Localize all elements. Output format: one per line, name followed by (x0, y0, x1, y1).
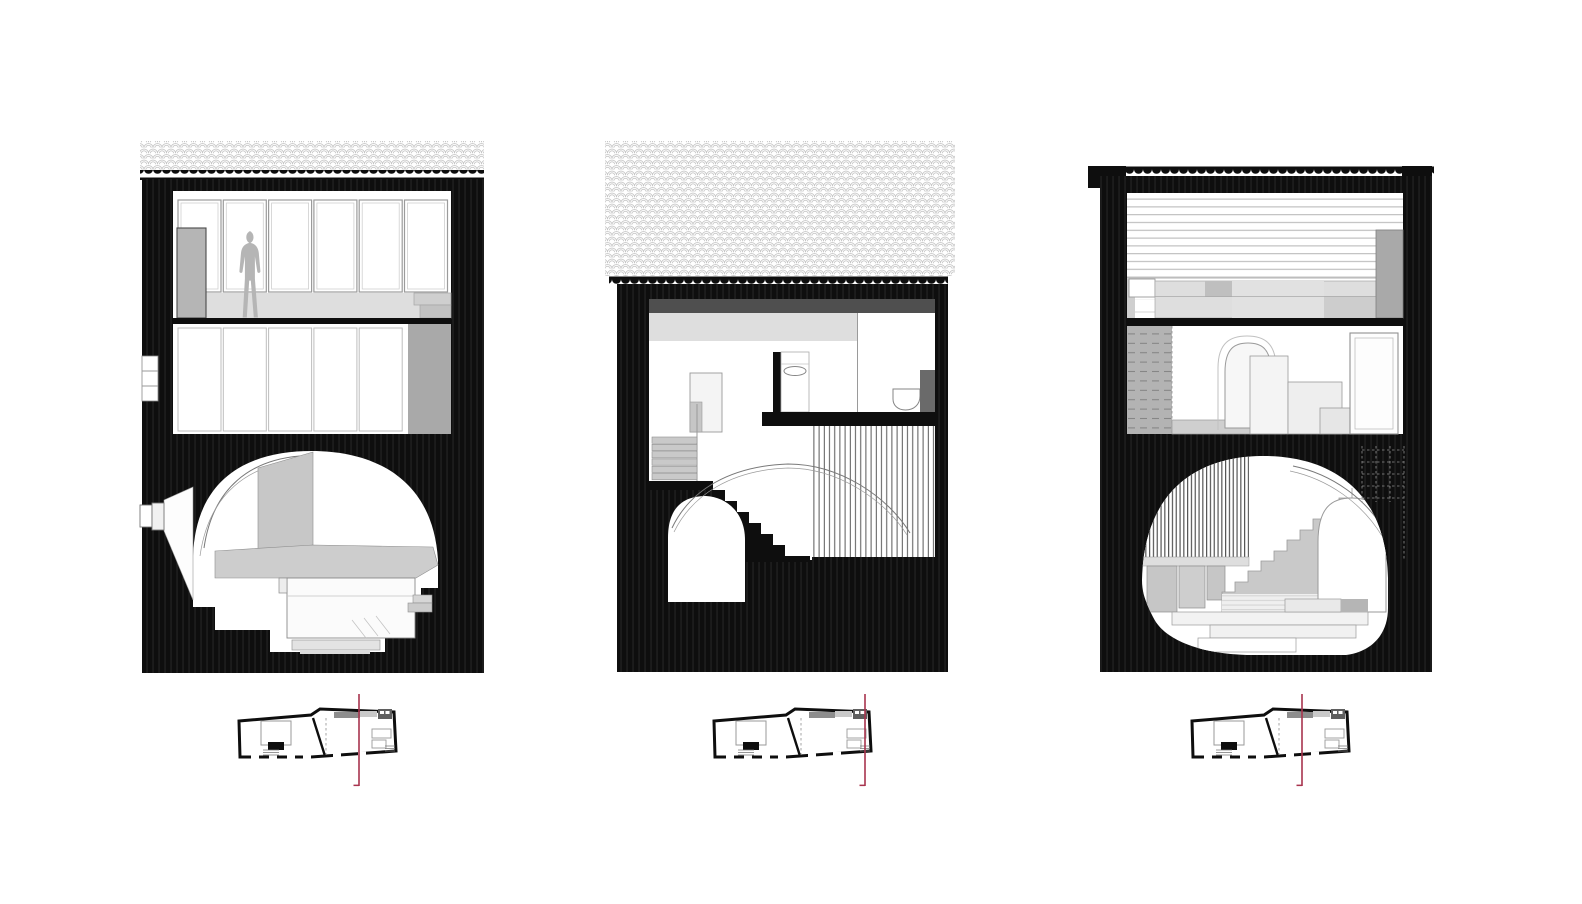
roof-tiles (140, 141, 484, 171)
window (359, 200, 402, 292)
upper-hall (649, 341, 858, 412)
canopy-plane (215, 545, 438, 578)
roof-eave (140, 170, 484, 180)
upper-room (1127, 193, 1403, 318)
lower-level (1127, 326, 1403, 434)
roof-eave (1088, 166, 1434, 177)
key-plan-2 (714, 694, 871, 786)
section-2 (605, 141, 955, 672)
tall-cabinet (1376, 230, 1403, 318)
toilet (893, 389, 920, 410)
roof-tiles (605, 141, 955, 276)
ceiling-soffit (649, 313, 858, 341)
window (405, 200, 448, 292)
closet-doors (178, 328, 402, 431)
section-1 (140, 141, 484, 673)
stair-room-slab (649, 481, 713, 490)
section-3 (1088, 166, 1434, 672)
street-window (142, 356, 158, 401)
bathroom-slab (762, 412, 935, 426)
slatted-screen (812, 426, 935, 557)
key-plan-3 (1192, 694, 1349, 786)
canopy-slope (258, 452, 313, 553)
arched-door (668, 496, 745, 602)
lower-room (173, 324, 451, 434)
hatched-wall (1127, 326, 1172, 434)
basin (784, 367, 806, 376)
door-leaf (1350, 333, 1398, 434)
sections-drawing (0, 0, 1582, 904)
window (314, 200, 357, 292)
floor-slab (1127, 318, 1403, 326)
key-plan-1 (239, 694, 396, 786)
bed-head (690, 373, 722, 432)
ceiling-beam-band (649, 299, 935, 313)
architectural-sections-sheet (0, 0, 1582, 904)
toilet-panel (920, 370, 935, 412)
wardrobe (177, 228, 206, 318)
floor-slab (173, 318, 451, 324)
service-panel (408, 324, 451, 434)
roof-eave (609, 274, 948, 285)
upper-room (173, 191, 451, 318)
window (269, 200, 312, 292)
basin-wall (773, 352, 781, 412)
